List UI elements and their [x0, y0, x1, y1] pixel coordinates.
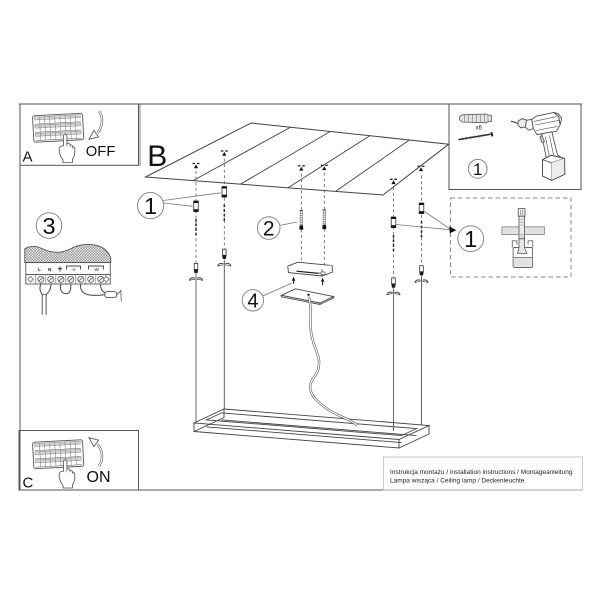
svg-text:Instrukcja montażu / installat: Instrukcja montażu / installation instru…	[390, 469, 573, 476]
svg-text:OFF: OFF	[86, 144, 116, 160]
svg-text:1: 1	[144, 193, 157, 219]
svg-text:L: L	[38, 267, 41, 272]
svg-text:Lampa wisząca / Ceiling lamp /: Lampa wisząca / Ceiling lamp / Deckenleu…	[390, 478, 525, 485]
svg-text:B: B	[147, 140, 167, 173]
svg-text:2: 2	[263, 218, 275, 241]
svg-text:A: A	[23, 149, 33, 166]
svg-text:1: 1	[464, 226, 477, 252]
svg-text:-V: -V	[71, 267, 75, 272]
svg-text:C: C	[23, 475, 34, 492]
svg-text:x6: x6	[476, 126, 483, 132]
svg-text:1: 1	[473, 160, 482, 179]
svg-text:ON: ON	[87, 469, 111, 486]
svg-text:-W: -W	[93, 267, 98, 272]
svg-text:3: 3	[42, 213, 55, 239]
svg-text:4: 4	[247, 291, 258, 313]
